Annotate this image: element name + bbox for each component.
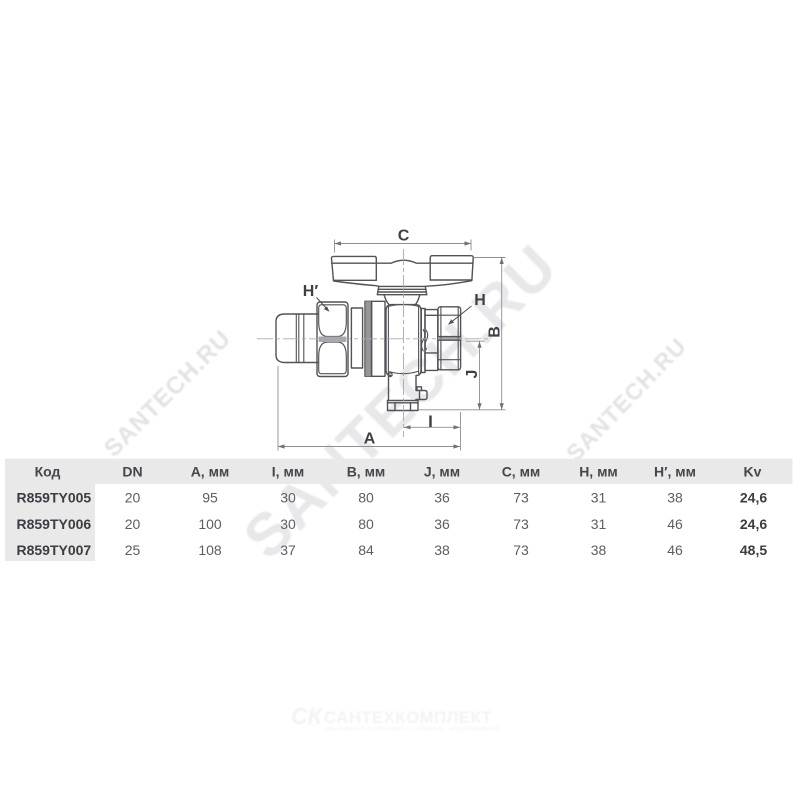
svg-text:DN: DN (122, 464, 142, 480)
svg-text:ИНЖЕНЕРНАЯ САНТЕХНИКА • ОТОПЛЕ: ИНЖЕНЕРНАЯ САНТЕХНИКА • ОТОПЛЕНИЕ • ВОДО… (326, 727, 501, 733)
svg-text:H′, мм: H′, мм (654, 464, 696, 480)
svg-text:38: 38 (667, 490, 683, 506)
svg-text:73: 73 (513, 542, 529, 558)
svg-text:80: 80 (358, 490, 374, 506)
svg-text:24,6: 24,6 (740, 490, 767, 506)
svg-text:C: C (398, 228, 410, 245)
svg-text:A: A (364, 431, 376, 448)
svg-text:R859TY006: R859TY006 (17, 516, 92, 532)
svg-text:73: 73 (513, 490, 529, 506)
svg-text:36: 36 (434, 490, 450, 506)
svg-text:H′: H′ (303, 283, 319, 300)
svg-text:38: 38 (434, 542, 450, 558)
svg-text:H, мм: H, мм (579, 464, 618, 480)
svg-text:84: 84 (358, 542, 374, 558)
svg-text:36: 36 (434, 516, 450, 532)
svg-text:I: I (428, 412, 433, 431)
svg-text:38: 38 (591, 542, 607, 558)
svg-text:30: 30 (280, 490, 296, 506)
svg-text:24,6: 24,6 (740, 516, 767, 532)
svg-text:B: B (487, 326, 504, 338)
svg-text:20: 20 (125, 516, 141, 532)
svg-text:46: 46 (667, 516, 683, 532)
svg-text:A, мм: A, мм (191, 464, 230, 480)
svg-text:37: 37 (280, 542, 296, 558)
svg-text:100: 100 (198, 516, 222, 532)
svg-text:J, мм: J, мм (424, 464, 460, 480)
svg-text:СК: СК (291, 703, 324, 729)
svg-text:80: 80 (358, 516, 374, 532)
svg-text:Код: Код (35, 464, 61, 480)
svg-text:R859TY005: R859TY005 (17, 490, 92, 506)
svg-text:J: J (464, 370, 481, 379)
svg-text:25: 25 (125, 542, 141, 558)
svg-text:B, мм: B, мм (347, 464, 386, 480)
svg-text:I, мм: I, мм (272, 464, 304, 480)
svg-text:20: 20 (125, 490, 141, 506)
svg-text:30: 30 (280, 516, 296, 532)
svg-text:R859TY007: R859TY007 (17, 542, 92, 558)
svg-text:46: 46 (667, 542, 683, 558)
svg-text:31: 31 (591, 490, 607, 506)
svg-text:48,5: 48,5 (740, 542, 767, 558)
svg-text:H: H (474, 292, 486, 309)
svg-text:C, мм: C, мм (502, 464, 541, 480)
svg-text:95: 95 (202, 490, 218, 506)
svg-text:73: 73 (513, 516, 529, 532)
svg-text:108: 108 (198, 542, 222, 558)
svg-text:31: 31 (591, 516, 607, 532)
svg-text:САНТЕХКОМПЛЕКТ: САНТЕХКОМПЛЕКТ (324, 708, 492, 727)
svg-text:Kv: Kv (744, 464, 762, 480)
